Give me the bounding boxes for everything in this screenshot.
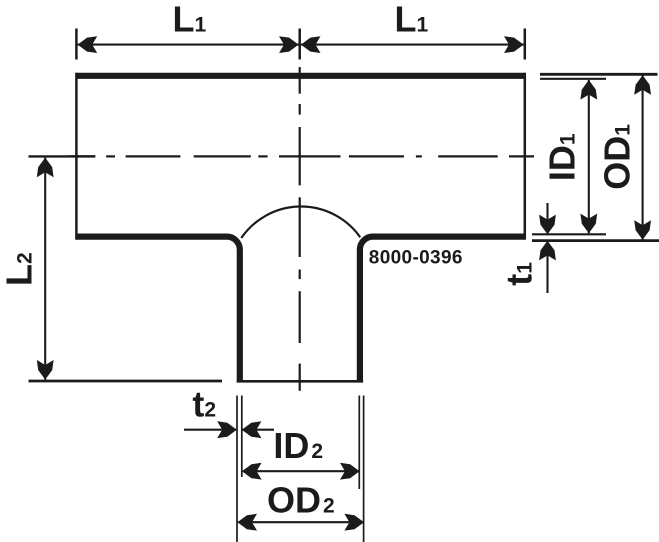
svg-text:L1: L1 <box>173 0 207 40</box>
svg-text:t1: t1 <box>499 262 540 286</box>
svg-text:ID2: ID2 <box>273 425 323 466</box>
svg-text:L2: L2 <box>0 252 39 286</box>
svg-text:OD1: OD1 <box>597 124 638 190</box>
svg-text:OD2: OD2 <box>267 480 335 521</box>
svg-text:L1: L1 <box>395 0 429 40</box>
svg-text:t2: t2 <box>192 383 216 424</box>
svg-text:8000-0396: 8000-0396 <box>369 247 463 268</box>
svg-text:ID1: ID1 <box>542 133 583 181</box>
